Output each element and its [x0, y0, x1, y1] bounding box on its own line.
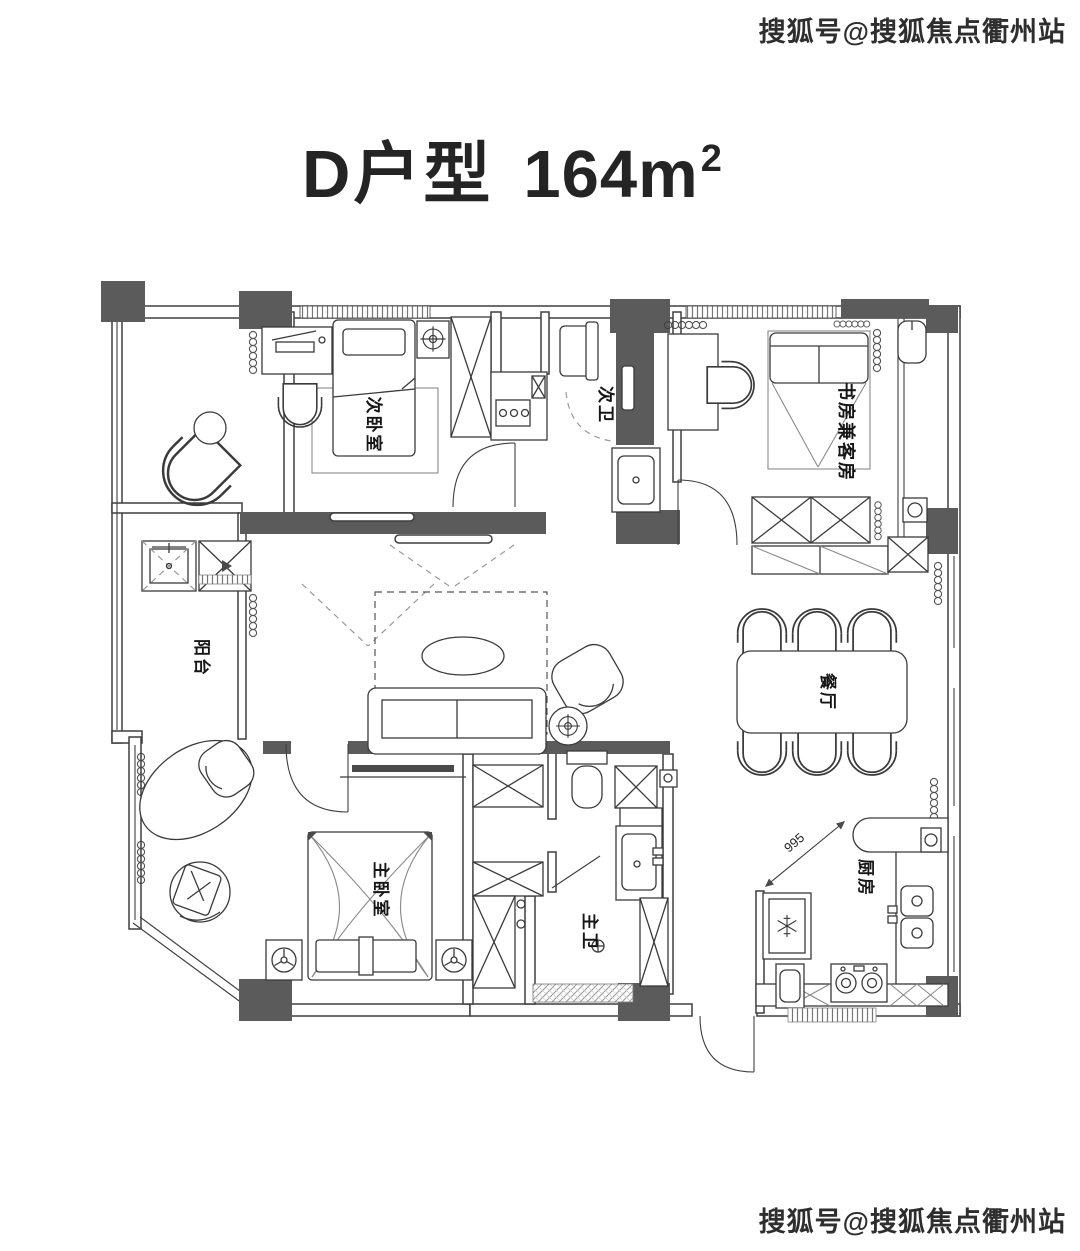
room-label-study-guest: 书房兼客房: [836, 382, 857, 482]
master-bath-furniture: 主卫: [473, 751, 677, 1002]
secondary-bedroom-furniture: 次卧室: [262, 317, 514, 646]
dining-furniture: 餐厅: [737, 609, 907, 775]
room-label-balcony: 阳台: [192, 639, 212, 677]
balcony-furniture: 阳台: [142, 541, 251, 677]
room-label-secondary-bath: 次卫: [596, 386, 616, 424]
room-label-master-bath: 主卫: [580, 913, 600, 951]
kitchen-furniture: 995 厨房: [756, 818, 948, 1022]
floor-plan-drawing: 次卧室 阳台: [0, 0, 1080, 1251]
watermark-bottom: 搜狐号@搜狐焦点衢州站: [759, 1200, 1066, 1239]
master-bedroom-furniture: 主卧室: [121, 720, 472, 980]
room-label-secondary-bedroom: 次卧室: [364, 397, 384, 454]
kitchen-dimension: 995: [765, 821, 845, 887]
floor-plan-page: 搜狐号@搜狐焦点衢州站 D户型164m2: [0, 0, 1080, 1251]
room-label-kitchen: 厨房: [856, 859, 876, 897]
room-label-master-bedroom: 主卧室: [371, 862, 391, 919]
dim-label-995: 995: [781, 830, 807, 855]
study-furniture: 书房兼客房: [668, 321, 927, 543]
room-label-dining: 餐厅: [818, 673, 838, 711]
